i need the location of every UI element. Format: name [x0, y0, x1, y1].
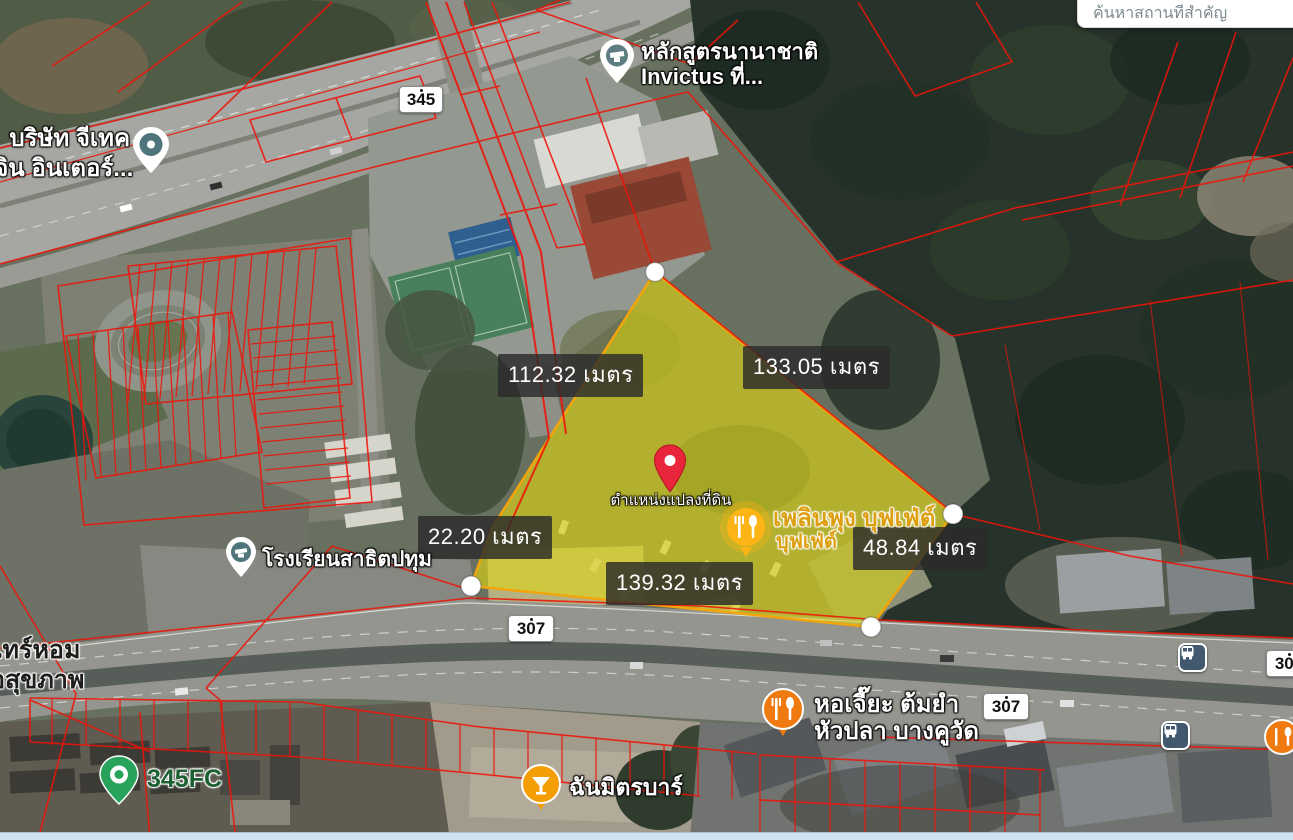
poi-healthhome-label2: อสุขภาพ [0, 660, 84, 700]
route-badge-307: 307 [1266, 650, 1293, 677]
restaurant-icon [718, 499, 774, 561]
school-pin-icon [224, 536, 258, 578]
orange-pin-icon [1262, 718, 1293, 762]
page-bottom-strip [0, 832, 1293, 840]
bus-icon [1180, 645, 1195, 660]
poi-gtech-label2: เจิน อินเตอร์... [0, 148, 130, 187]
company-pin-icon [131, 126, 171, 174]
map-pin-icon [653, 444, 687, 494]
measure-lower-left: 22.20 เมตร [418, 516, 552, 559]
route-badge-345: 345 [399, 86, 443, 113]
vertex-handle[interactable] [646, 263, 665, 282]
badge-ornament [1288, 653, 1291, 656]
poi-invictus-label2: Invictus ที่... [641, 59, 763, 94]
bar-icon [519, 762, 563, 812]
search-input[interactable] [1091, 4, 1293, 24]
map-canvas[interactable] [0, 0, 1293, 840]
measure-bottom: 139.32 เมตร [606, 562, 753, 605]
badge-ornament [1005, 696, 1008, 699]
poi-chanmit-label: ฉันมิตรบาร์ [569, 770, 683, 806]
measure-right: 133.05 เมตร [743, 346, 890, 389]
search-box [1077, 0, 1293, 28]
restaurant-icon [760, 686, 806, 738]
poi-345fc-label: 345FC [147, 765, 222, 794]
bus-icon [1163, 723, 1178, 738]
school-pin-icon [598, 38, 636, 84]
badge-ornament [530, 618, 533, 621]
measure-left: 112.32 เมตร [498, 354, 643, 397]
bus-stop-icon[interactable] [1178, 643, 1207, 672]
poi-ploenpung-label2: บุฟเฟ่ต์ [776, 525, 837, 557]
vertex-handle[interactable] [943, 504, 963, 524]
route-badge-307: 307 [508, 615, 554, 642]
green-pin-icon [98, 755, 140, 805]
poi-horjia-label2: หัวปลา บางคูวัด [814, 711, 979, 750]
poi-school-label: โรงเรียนสาธิตปทุม [262, 543, 432, 576]
bus-stop-icon[interactable] [1161, 721, 1190, 750]
vertex-handle[interactable] [461, 576, 481, 596]
map-stage: 112.32 เมตร 133.05 เมตร 22.20 เมตร 48.84… [0, 0, 1293, 840]
route-badge-307: 307 [983, 693, 1029, 720]
badge-ornament [420, 89, 423, 92]
vertex-handle[interactable] [861, 617, 881, 637]
